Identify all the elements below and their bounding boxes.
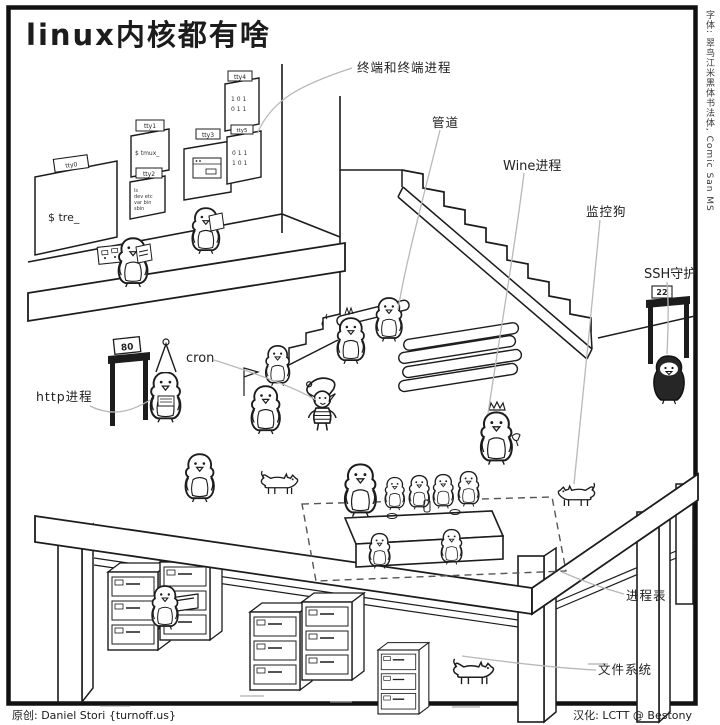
paper [209,213,224,231]
comic-page: tty0 $ tre_ tty1 $ tmux_ tty2 ls dev etc… [0,0,720,725]
goblet [512,434,520,446]
penguin-table [458,472,479,507]
page-title: linux内核都有啥 [26,12,271,54]
crown [489,402,505,410]
cron-elf [307,378,336,430]
label-wine: Wine进程 [503,159,561,174]
dog-watchdog [558,483,594,506]
penguin-wine [481,402,520,465]
penguin-table [369,534,390,569]
terminal-text: $ tmux_ [135,150,160,157]
label-terminals: 终端和终端进程 [357,60,452,75]
label-filesystem: 文件系统 [598,662,652,677]
penguin-httpd [151,339,181,422]
poster-tty0: tty0 $ tre_ [35,155,117,255]
floor-junction-right [598,316,695,338]
penguin-table [433,475,453,509]
mezzanine-slab [28,243,345,321]
penguin-table [409,476,429,510]
digit-row: 0 1 1 [231,106,246,113]
tty-tag: tty4 [234,74,246,81]
label-cron: cron [186,351,214,366]
pipes [398,322,522,392]
font-credit-note: 字体: 翠鸟江米黑体书法体, Comic San MS [703,10,716,250]
paper [136,244,152,263]
label-http: http进程 [36,389,93,404]
label-pipe: 管道 [432,115,459,130]
label-watchdog: 监控狗 [586,204,627,219]
penguin-filesystem [152,586,178,630]
author-credit: 原创: Daniel Stori {turnoff.us} [12,707,176,723]
file-cabinet [302,593,364,680]
penguin-table [385,478,404,511]
poster-tty5: tty5 0 1 1 1 0 1 [227,125,261,184]
digit-row: 1 0 1 [232,160,247,167]
digit-row: 1 0 1 [231,96,246,103]
tty-tag: tty5 [236,128,248,134]
dog-floor [261,471,297,494]
digit-row: 0 1 1 [232,150,247,157]
penguin-stairs [266,346,290,386]
tty-tag: tty2 [143,171,155,178]
platform-leg [518,548,556,722]
tty-tag: tty1 [144,123,156,130]
poster-tty3-gui: tty3 [184,129,231,200]
ssh-port-sign: 22 [656,288,667,297]
mezzanine: tty0 $ tre_ tty1 $ tmux_ tty2 ls dev etc… [28,64,345,338]
penguin-walker [186,454,214,502]
poster-tty4: tty4 1 0 1 0 1 1 [225,71,259,131]
penguin-pipe [376,298,402,342]
platform-leg [58,524,93,702]
label-ssh: SSH守护 [644,267,696,282]
penguin-pipe [337,318,364,364]
penguin-ssh [654,356,684,404]
listing-line: sbin [134,206,144,212]
http-port-sign: 80 [121,342,135,353]
tty-tag: tty3 [202,132,214,139]
penguin-table [441,530,462,565]
scene: tty0 $ tre_ tty1 $ tmux_ tty2 ls dev etc… [0,0,720,725]
file-cabinet [378,643,429,714]
terminal-text: $ tre_ [48,211,80,224]
translator-credit: 汉化: LCTT @ Bestony [573,707,692,723]
penguin-table [345,464,376,516]
dog-basement [454,659,494,684]
label-process-table: 进程表 [626,588,667,603]
